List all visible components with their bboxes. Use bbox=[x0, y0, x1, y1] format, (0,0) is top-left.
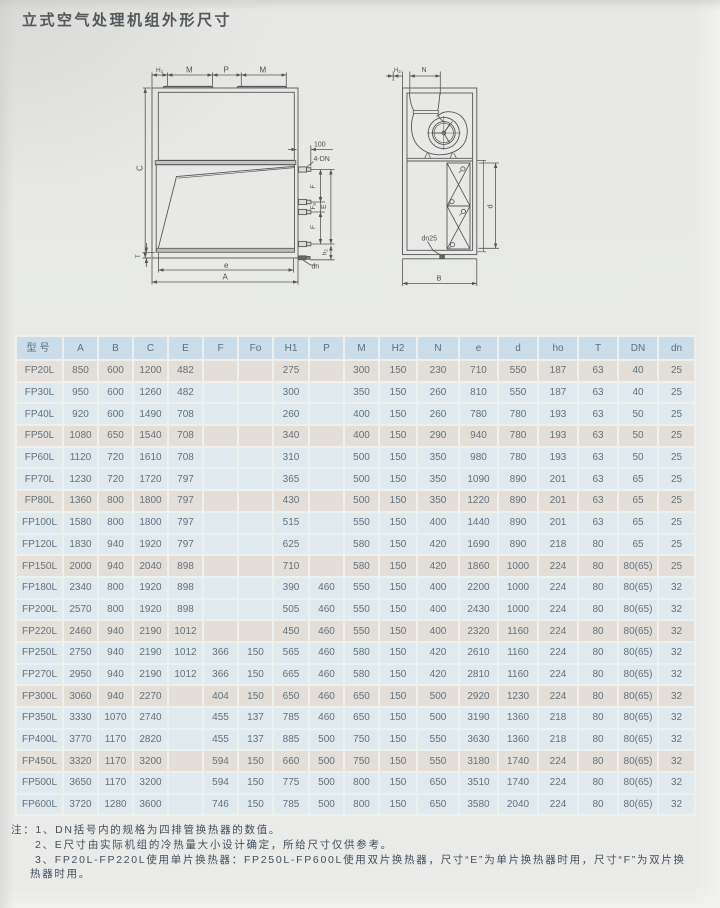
svg-text:F: F bbox=[310, 185, 317, 189]
svg-text:F0: F0 bbox=[310, 203, 317, 210]
svg-text:e: e bbox=[224, 261, 229, 270]
svg-text:E: E bbox=[321, 204, 328, 209]
svg-text:d: d bbox=[486, 204, 495, 208]
svg-text:100: 100 bbox=[314, 142, 326, 149]
svg-text:dn25: dn25 bbox=[422, 235, 438, 242]
svg-text:h2: h2 bbox=[323, 249, 329, 255]
svg-text:4-DN: 4-DN bbox=[314, 156, 330, 163]
svg-text:A: A bbox=[223, 273, 229, 282]
svg-text:H1: H1 bbox=[156, 67, 164, 74]
svg-text:M: M bbox=[186, 66, 193, 75]
svg-text:T: T bbox=[136, 254, 142, 258]
svg-text:M: M bbox=[260, 66, 267, 75]
svg-text:F: F bbox=[310, 225, 317, 229]
svg-text:B: B bbox=[437, 274, 442, 283]
svg-text:H2: H2 bbox=[394, 68, 401, 74]
svg-text:dn: dn bbox=[312, 264, 320, 271]
svg-text:N: N bbox=[422, 67, 427, 74]
svg-text:P: P bbox=[224, 66, 229, 75]
svg-text:C: C bbox=[136, 165, 145, 171]
